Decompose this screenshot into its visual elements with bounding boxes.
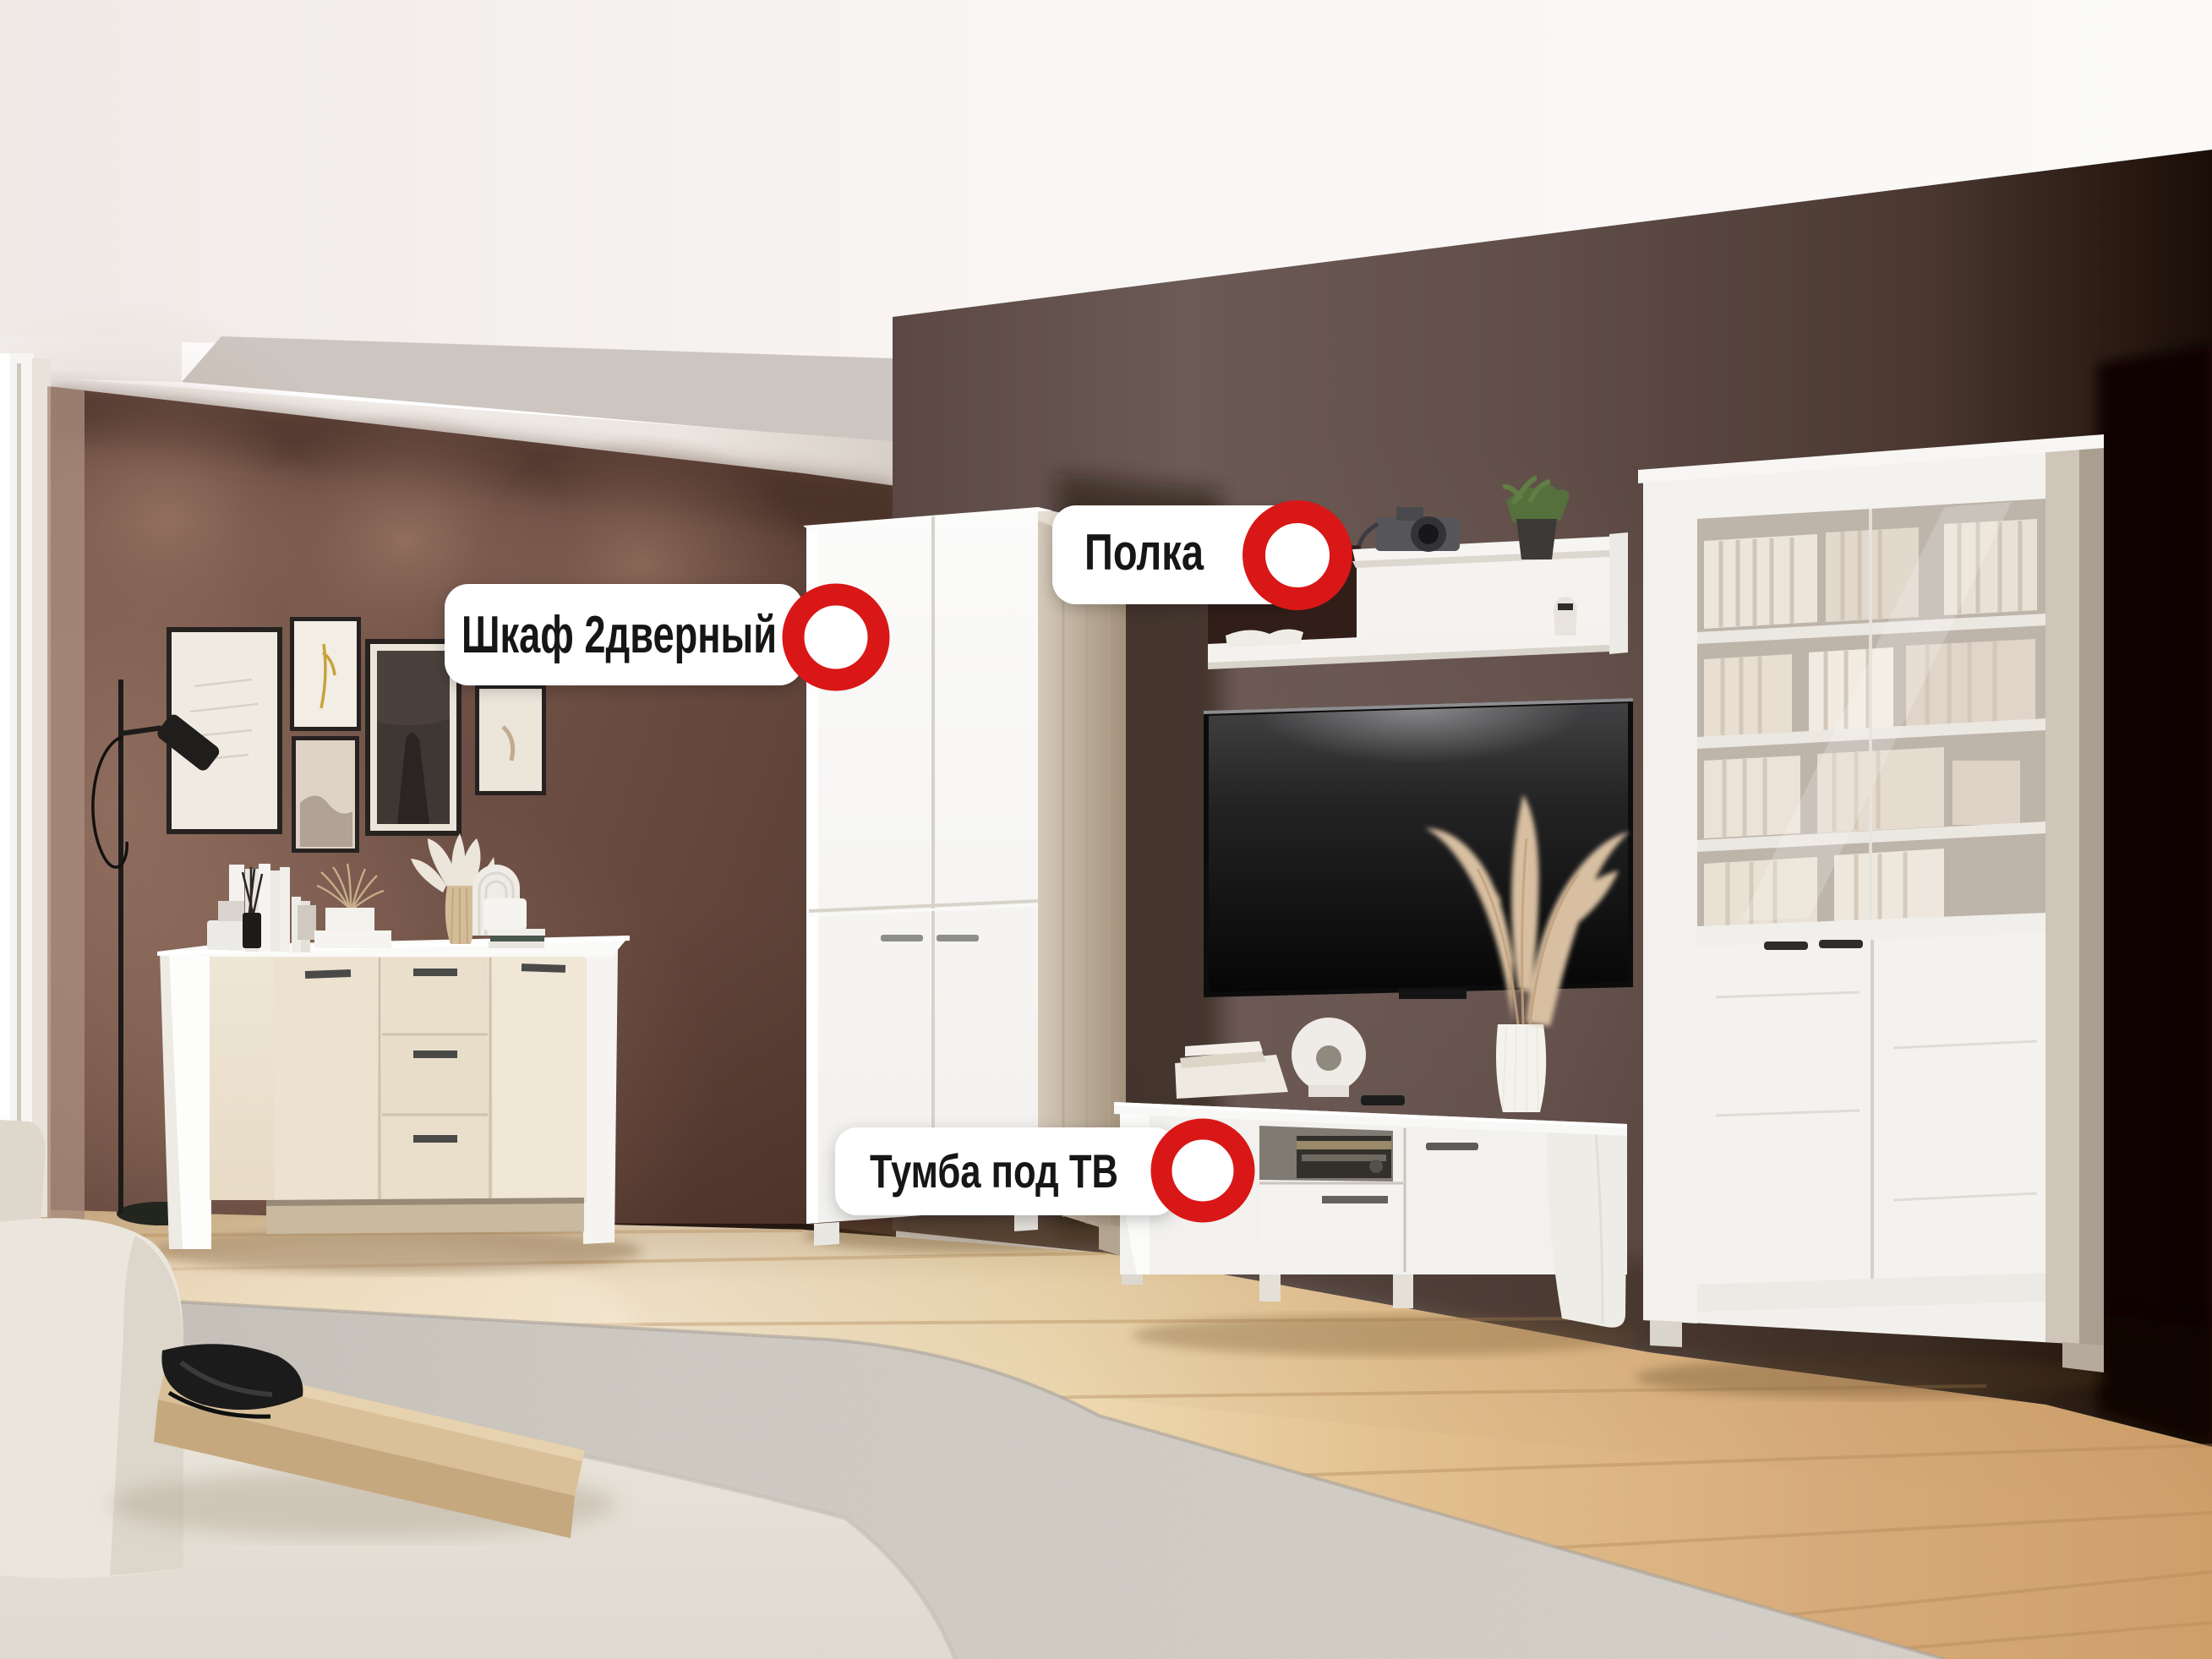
svg-text:Тумба под ТВ: Тумба под ТВ: [870, 1144, 1118, 1198]
svg-text:Полка: Полка: [1084, 524, 1204, 581]
svg-text:Шкаф 2дверный: Шкаф 2дверный: [462, 606, 777, 664]
